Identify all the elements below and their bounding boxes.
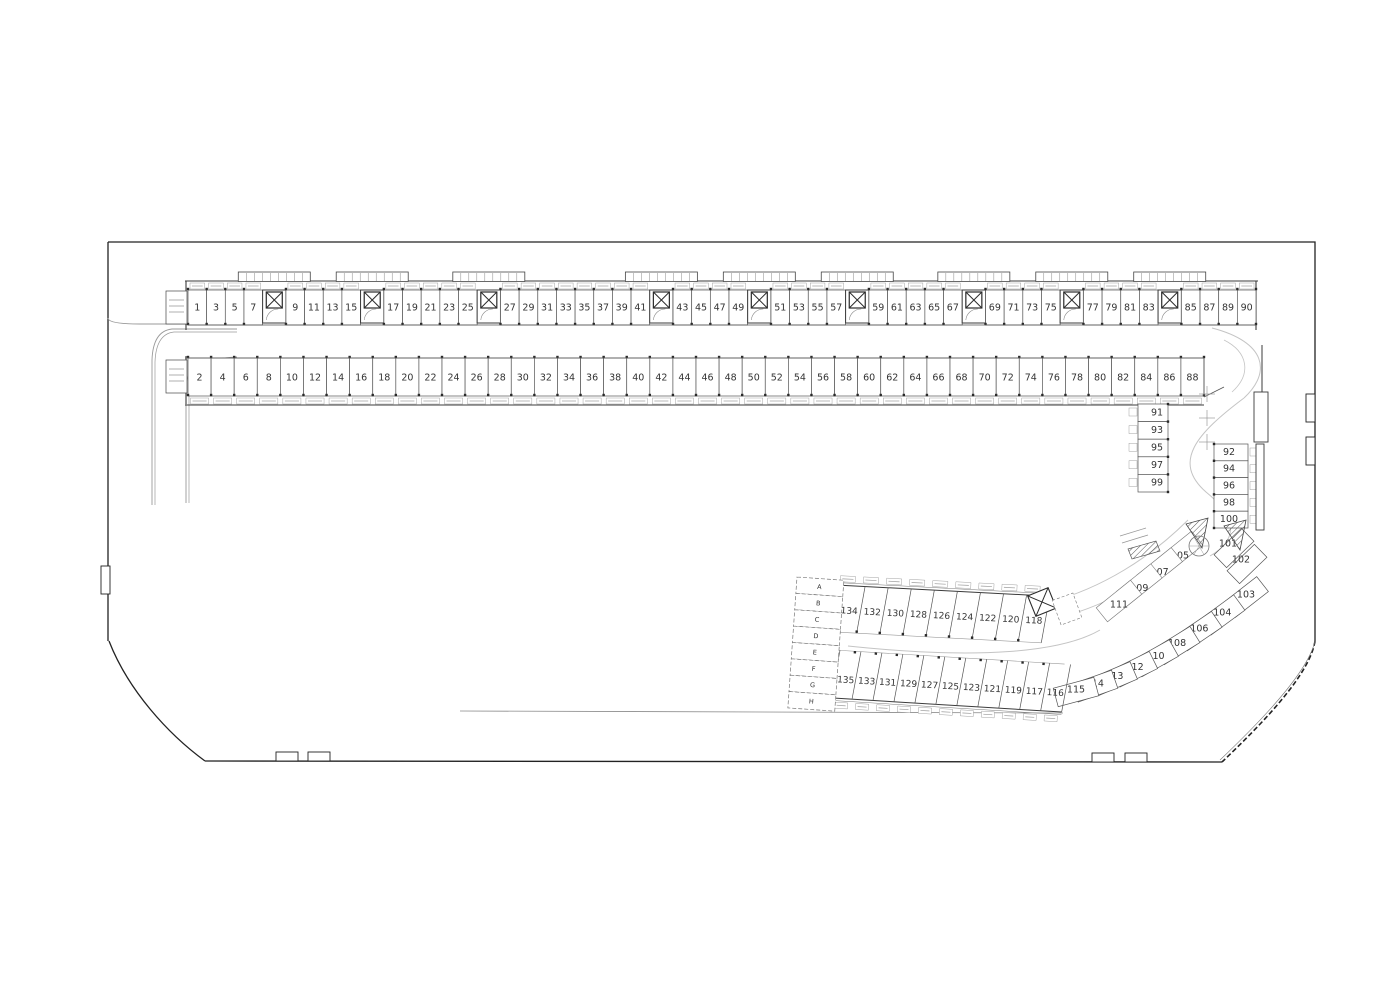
- parking-stall-75: 75: [1040, 283, 1060, 325]
- tiny-code-text: [941, 712, 950, 713]
- parking-stall-82: 82: [1110, 356, 1134, 404]
- stall-corner-dot: [593, 288, 595, 290]
- boundary-bump: [276, 752, 298, 761]
- drive-lane-curve: [1224, 340, 1245, 392]
- stall-corner-dot: [1021, 661, 1024, 664]
- stall-corner-dot: [1167, 473, 1169, 475]
- parking-stall-77: 77: [1082, 283, 1102, 325]
- stall-number: 10: [286, 373, 298, 384]
- stall-number: 2: [197, 373, 203, 384]
- parking-stall-44: 44: [672, 356, 696, 404]
- parking-stall-6: 6: [233, 356, 257, 404]
- stall-number: 83: [1143, 303, 1155, 314]
- stall-corner-dot: [302, 394, 304, 396]
- drive-lane-curve: [848, 630, 1100, 653]
- parking-stall-48: 48: [718, 356, 742, 404]
- stall-corner-dot: [602, 394, 604, 396]
- stall-corner-dot: [1040, 288, 1042, 290]
- crosshair-marker-icon: [1199, 410, 1215, 426]
- stair-bump-out: [1036, 272, 1108, 282]
- stall-number: 55: [812, 303, 824, 314]
- parking-stall-1: 1: [187, 283, 207, 325]
- stall-number: 77: [1087, 303, 1099, 314]
- parking-stall-89: 89: [1217, 283, 1237, 325]
- stair-bump-out: [238, 272, 310, 282]
- stall-number: 50: [748, 373, 760, 384]
- stair-bump-out: [625, 272, 697, 282]
- stall-corner-dot: [942, 288, 944, 290]
- stall-number: 76: [1048, 373, 1060, 384]
- stall-number: 25: [462, 303, 474, 314]
- parking-stall-33: 33: [555, 283, 575, 325]
- boundary-bump: [1306, 394, 1315, 422]
- stall-number: 127: [921, 680, 939, 691]
- parking-stall-24: 24: [441, 356, 465, 404]
- parking-stall-60: 60: [856, 356, 880, 404]
- parking-stall-46: 46: [695, 356, 719, 404]
- stall-number: 56: [817, 373, 829, 384]
- stall-number: 133: [858, 677, 876, 688]
- stall-number: 36: [586, 373, 598, 384]
- parking-stall-7: 7: [243, 283, 263, 325]
- parking-stall-27: 27: [499, 283, 519, 325]
- stall-corner-dot: [788, 288, 790, 290]
- parking-stall-52: 52: [764, 356, 788, 404]
- stall-number: 79: [1105, 303, 1117, 314]
- stall-number: 94: [1223, 464, 1235, 475]
- stall-number: 40: [632, 373, 644, 384]
- stall-number: 95: [1151, 443, 1163, 454]
- stall-corner-dot: [925, 634, 928, 637]
- ramp-wall: [1254, 392, 1268, 442]
- stall-number: 118: [1025, 616, 1043, 627]
- stall-corner-dot: [611, 288, 613, 290]
- parking-stall-35: 35: [574, 283, 594, 325]
- stall-corner-dot: [1167, 491, 1169, 493]
- boundary-bottom-left-curve: [109, 641, 205, 761]
- parking-stall-8: 8: [256, 356, 280, 404]
- stall-number: 1: [194, 303, 200, 314]
- stall-number: 4: [220, 373, 226, 384]
- stall-corner-dot: [926, 394, 928, 396]
- stall-number: 120: [1002, 615, 1020, 626]
- letter-cell-label: E: [812, 648, 817, 656]
- parking-stall-43: 43: [672, 283, 692, 325]
- stall-number: 30: [517, 373, 529, 384]
- stall-corner-dot: [1199, 288, 1201, 290]
- letter-cell-column: ABCDEFGH: [788, 577, 844, 711]
- parking-stall-51: 51: [770, 283, 790, 325]
- parking-stall-2: 2: [187, 356, 211, 404]
- stall-number: 7: [250, 303, 256, 314]
- stall-number: 37: [597, 303, 609, 314]
- side-room-label-box: [166, 291, 187, 324]
- stall-number: 28: [494, 373, 506, 384]
- tiny-code-text: [1025, 717, 1034, 718]
- stall-number: 41: [634, 303, 646, 314]
- parking-stall-69: 69: [984, 283, 1004, 325]
- parking-stall-25: 25: [457, 283, 477, 325]
- tiny-code-label: [1129, 461, 1137, 469]
- stall-number: 67: [947, 303, 959, 314]
- stall-corner-dot: [187, 288, 189, 290]
- stall-number: 26: [471, 373, 483, 384]
- parking-stall-53: 53: [788, 283, 808, 325]
- stall-number: 85: [1185, 303, 1197, 314]
- side-room-label-box: [166, 360, 187, 393]
- stall-corner-dot: [233, 394, 235, 396]
- tiny-code-text: [858, 707, 867, 708]
- stall-number: 111: [1110, 600, 1128, 611]
- parking-stall-54: 54: [787, 356, 811, 404]
- stall-corner-dot: [880, 394, 882, 396]
- stall-corner-dot: [420, 288, 422, 290]
- stall-corner-dot: [1213, 460, 1215, 462]
- stall-number: 5: [232, 303, 238, 314]
- stall-corner-dot: [1167, 403, 1169, 405]
- parking-stall-17: 17: [383, 283, 403, 325]
- parking-stall-13: 13: [322, 283, 342, 325]
- parking-stall-32: 32: [533, 356, 557, 404]
- stall-number: 121: [983, 684, 1001, 695]
- parking-stall-42: 42: [649, 356, 673, 404]
- stall-number: 69: [989, 303, 1001, 314]
- stall-corner-dot: [984, 288, 986, 290]
- parking-stall-88: 88: [1180, 356, 1204, 404]
- parking-stall-22: 22: [418, 356, 442, 404]
- stall-corner-dot: [1180, 394, 1182, 396]
- parking-stall-18: 18: [372, 356, 396, 404]
- parking-stall-71: 71: [1003, 283, 1023, 325]
- stall-number: 54: [794, 373, 806, 384]
- stall-corner-dot: [325, 394, 327, 396]
- boundary-diagonal-hatched: [1222, 641, 1315, 762]
- stall-corner-dot: [279, 394, 281, 396]
- stall-corner-dot: [1167, 438, 1169, 440]
- stall-number: 46: [701, 373, 713, 384]
- parking-stall-11: 11: [303, 283, 323, 325]
- bottom-stall-row: 2468101214161820222426283032343638404244…: [185, 356, 1224, 405]
- stall-number: 11: [308, 303, 320, 314]
- stall-corner-dot: [537, 288, 539, 290]
- stall-number: 32: [540, 373, 552, 384]
- stall-corner-dot: [1134, 394, 1136, 396]
- stall-corner-dot: [1042, 663, 1045, 666]
- parking-stall-41: 41: [630, 283, 650, 325]
- stall-number: 31: [541, 303, 553, 314]
- boundary-bump: [1092, 753, 1114, 762]
- parking-stall-61: 61: [886, 283, 906, 325]
- stall-corner-dot: [1087, 394, 1089, 396]
- parking-stall-10: 10: [279, 356, 303, 404]
- stair-bump-out: [1134, 272, 1206, 282]
- stall-number: 103: [1237, 590, 1255, 601]
- stall-number: 116: [1046, 688, 1064, 699]
- parking-stall-74: 74: [1018, 356, 1042, 404]
- stall-corner-dot: [728, 288, 730, 290]
- stall-corner-dot: [868, 288, 870, 290]
- parking-stall-39: 39: [611, 283, 631, 325]
- stall-number: 9: [292, 303, 298, 314]
- parking-stall-47: 47: [709, 283, 729, 325]
- stall-number: 130: [886, 609, 904, 620]
- parking-stall-56: 56: [810, 356, 834, 404]
- stall-corner-dot: [695, 394, 697, 396]
- parking-stall-66: 66: [926, 356, 950, 404]
- stair-bump-out: [723, 272, 795, 282]
- stall-number: 44: [678, 373, 690, 384]
- tiny-code-text: [1046, 718, 1055, 719]
- stall-number: 81: [1124, 303, 1136, 314]
- stall-number: 134: [840, 606, 858, 617]
- stall-corner-dot: [994, 638, 997, 641]
- stall-corner-dot: [1017, 639, 1020, 642]
- parking-stall-15: 15: [341, 283, 361, 325]
- parking-stall-65: 65: [924, 283, 944, 325]
- parking-stall-30: 30: [510, 356, 534, 404]
- stall-number: 15: [345, 303, 357, 314]
- stall-number: 129: [900, 679, 918, 690]
- parking-stall-68: 68: [949, 356, 973, 404]
- ramp-hatch-strip: [1128, 541, 1160, 559]
- parking-stall-64: 64: [903, 356, 927, 404]
- stall-number: 117: [1025, 687, 1043, 698]
- stall-number: 122: [979, 614, 997, 625]
- parking-stall-9: 9: [285, 283, 305, 325]
- parking-stall-67: 67: [942, 283, 962, 325]
- stall-number: 63: [909, 303, 921, 314]
- stall-corner-dot: [787, 394, 789, 396]
- parking-stall-4: 4: [210, 356, 234, 404]
- stall-corner-dot: [741, 394, 743, 396]
- tiny-code-label: [1129, 478, 1137, 486]
- stall-number: 92: [1223, 447, 1235, 458]
- stall-number: 59: [872, 303, 884, 314]
- ramp-arrow-line: [1122, 535, 1148, 543]
- stall-number: 61: [891, 303, 903, 314]
- letter-cell-label: H: [809, 697, 815, 705]
- right-column-91-99: 9193959799: [1129, 403, 1169, 493]
- right-column-92-100: 92949698100: [1213, 443, 1258, 529]
- stall-number: 128: [910, 610, 928, 621]
- stall-number: 119: [1004, 686, 1022, 697]
- parking-stall-84: 84: [1134, 356, 1158, 404]
- stall-corner-dot: [875, 652, 878, 655]
- row-open-edge: [834, 632, 1042, 643]
- stall-corner-dot: [499, 288, 501, 290]
- stall-number: 86: [1163, 373, 1175, 384]
- lower-upper-diag-row: 134132130128126124122120118: [832, 575, 1050, 643]
- stall-number: 48: [725, 373, 737, 384]
- parking-stall-50: 50: [741, 356, 765, 404]
- lower-lower-diag-row: 135133131129127125123121119117116: [829, 650, 1070, 723]
- parking-stall-45: 45: [690, 283, 710, 325]
- tiny-code-label: [1129, 408, 1137, 416]
- stall-number: 13: [327, 303, 339, 314]
- stall-corner-dot: [718, 394, 720, 396]
- stall-corner-dot: [1003, 288, 1005, 290]
- parking-stall-36: 36: [579, 356, 603, 404]
- stall-number: 12: [309, 373, 321, 384]
- boundary-diagonal-inner: [1220, 641, 1315, 760]
- stall-number: 70: [979, 373, 991, 384]
- stall-corner-dot: [1157, 394, 1159, 396]
- stall-number: 14: [332, 373, 344, 384]
- stall-corner-dot: [879, 632, 882, 635]
- letter-cell-label: B: [816, 599, 821, 607]
- stall-number: 27: [504, 303, 516, 314]
- parking-stall-12: 12: [302, 356, 326, 404]
- parking-stall-31: 31: [537, 283, 557, 325]
- stall-number: 104: [1213, 607, 1231, 618]
- stall-corner-dot: [672, 288, 674, 290]
- tiny-code-text: [983, 714, 992, 715]
- stall-corner-dot: [896, 654, 899, 657]
- stall-number: 39: [616, 303, 628, 314]
- tiny-code-text: [962, 713, 971, 714]
- stall-corner-dot: [855, 630, 858, 633]
- stall-corner-dot: [958, 657, 961, 660]
- stall-corner-dot: [856, 394, 858, 396]
- stall-number: 90: [1241, 303, 1253, 314]
- parking-stall-85: 85: [1180, 283, 1200, 325]
- room-outline: [166, 360, 187, 393]
- parking-stall-26: 26: [464, 356, 488, 404]
- stall-number: 22: [424, 373, 436, 384]
- stall-corner-dot: [1167, 456, 1169, 458]
- stall-corner-dot: [401, 288, 403, 290]
- stall-number: 62: [886, 373, 898, 384]
- stall-corner-dot: [518, 288, 520, 290]
- stall-number: 98: [1223, 497, 1235, 508]
- parking-stall-81: 81: [1120, 283, 1140, 325]
- stall-corner-dot: [441, 394, 443, 396]
- stall-number: 96: [1223, 481, 1235, 492]
- parking-stall-14: 14: [325, 356, 349, 404]
- stall-number: 75: [1045, 303, 1057, 314]
- stall-corner-dot: [1180, 288, 1182, 290]
- stall-number: 57: [830, 303, 842, 314]
- parking-stall-38: 38: [602, 356, 626, 404]
- boundary-bump: [1306, 437, 1315, 465]
- stall-corner-dot: [764, 394, 766, 396]
- stall-number: 65: [928, 303, 940, 314]
- stall-number: 99: [1151, 478, 1163, 489]
- stall-number: 82: [1117, 373, 1129, 384]
- stair-bump-out: [336, 272, 408, 282]
- stall-number: 45: [695, 303, 707, 314]
- parking-stall-58: 58: [833, 356, 857, 404]
- boundary-bottom: [205, 761, 1222, 762]
- parking-stall-63: 63: [905, 283, 925, 325]
- stall-number: 93: [1151, 425, 1163, 436]
- stall-corner-dot: [487, 394, 489, 396]
- stall-corner-dot: [285, 288, 287, 290]
- stair-bump-out: [453, 272, 525, 282]
- parking-stall-21: 21: [420, 283, 440, 325]
- stall-corner-dot: [439, 288, 441, 290]
- ramp-arrow-line: [1120, 528, 1146, 536]
- stall-corner-dot: [574, 288, 576, 290]
- stall-number: 131: [879, 678, 897, 689]
- parking-stall-78: 78: [1064, 356, 1088, 404]
- stall-corner-dot: [902, 633, 905, 636]
- parking-stall-40: 40: [626, 356, 650, 404]
- stall-number: 6: [243, 373, 249, 384]
- stall-number: 42: [655, 373, 667, 384]
- stall-number: 52: [771, 373, 783, 384]
- top-stall-row: 1357911131517192123252729313335373941434…: [185, 272, 1258, 330]
- stall-corner-dot: [1041, 394, 1043, 396]
- boundary-bump: [308, 752, 330, 761]
- parking-stall-70: 70: [972, 356, 996, 404]
- stall-number: 8: [266, 373, 272, 384]
- stall-corner-dot: [303, 288, 305, 290]
- stall-corner-dot: [348, 394, 350, 396]
- parking-stall-5: 5: [224, 283, 244, 325]
- stall-number: 88: [1186, 373, 1198, 384]
- stall-number: 115: [1067, 685, 1085, 696]
- stall-corner-dot: [1101, 288, 1103, 290]
- stall-corner-dot: [1213, 476, 1215, 478]
- stall-corner-dot: [826, 288, 828, 290]
- stall-corner-dot: [770, 288, 772, 290]
- stall-number: 29: [522, 303, 534, 314]
- stall-corner-dot: [243, 288, 245, 290]
- stair-bump-out: [938, 272, 1010, 282]
- boundary-bump: [101, 566, 110, 594]
- stall-corner-dot: [510, 394, 512, 396]
- stair-bump-out: [821, 272, 893, 282]
- stall-corner-dot: [341, 288, 343, 290]
- stall-corner-dot: [854, 651, 857, 654]
- stall-corner-dot: [1213, 510, 1215, 512]
- stall-number: 21: [424, 303, 436, 314]
- stall-number: 20: [401, 373, 413, 384]
- stall-corner-dot: [630, 288, 632, 290]
- stall-corner-dot: [1110, 394, 1112, 396]
- stall-corner-dot: [224, 288, 226, 290]
- letter-cell-label: G: [810, 681, 816, 689]
- parking-stall-23: 23: [439, 283, 459, 325]
- road-curb: [152, 329, 237, 505]
- stall-number: 123: [963, 683, 981, 694]
- stall-number: 124: [956, 612, 974, 623]
- stall-corner-dot: [457, 288, 459, 290]
- stall-corner-dot: [579, 394, 581, 396]
- tiny-code-text: [879, 708, 888, 709]
- service-room: [1052, 593, 1082, 625]
- tiny-code-text: [837, 705, 846, 706]
- stall-number: 47: [714, 303, 726, 314]
- parking-stall-87: 87: [1199, 283, 1219, 325]
- parking-stall-73: 73: [1022, 283, 1042, 325]
- parking-floor-plan-drawing: 1357911131517192123252729313335373941434…: [0, 0, 1400, 988]
- tiny-code-text: [920, 710, 929, 711]
- stall-corner-dot: [1213, 527, 1215, 529]
- parking-stall-62: 62: [880, 356, 904, 404]
- stall-corner-dot: [1138, 288, 1140, 290]
- stall-corner-dot: [626, 394, 628, 396]
- stall-corner-dot: [995, 394, 997, 396]
- stall-corner-dot: [833, 394, 835, 396]
- row-open-edge: [834, 650, 1065, 664]
- stall-corner-dot: [924, 288, 926, 290]
- stall-corner-dot: [971, 636, 974, 639]
- stall-corner-dot: [256, 394, 258, 396]
- stall-number: 87: [1203, 303, 1215, 314]
- stall-number: 66: [932, 373, 944, 384]
